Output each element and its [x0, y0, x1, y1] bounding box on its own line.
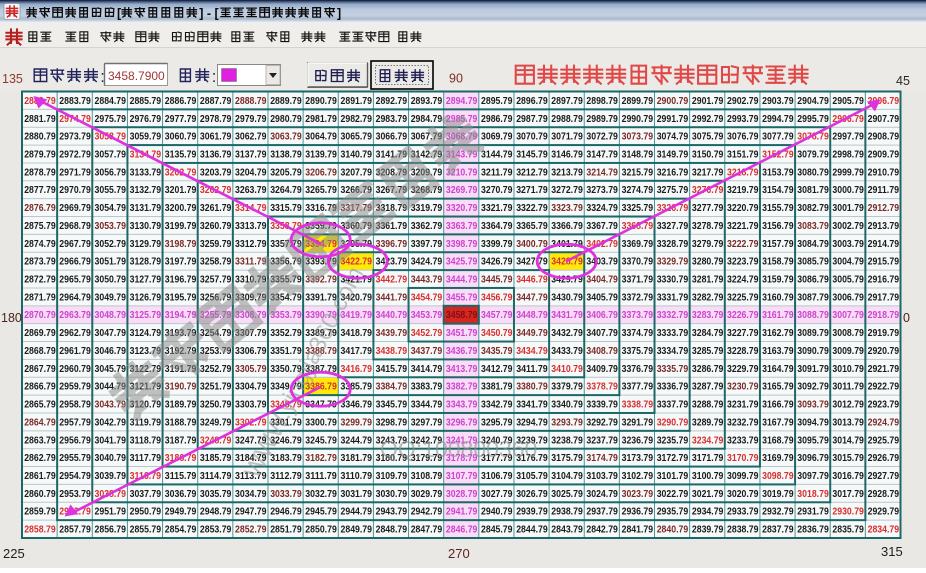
svg-text:3170.79: 3170.79	[727, 453, 759, 464]
svg-text:2881.79: 2881.79	[24, 114, 56, 125]
svg-text:3287.79: 3287.79	[692, 382, 724, 393]
svg-text:3026.79: 3026.79	[516, 489, 548, 500]
svg-text:2898.79: 2898.79	[586, 96, 618, 107]
svg-text:3270.79: 3270.79	[481, 185, 513, 196]
svg-text:3214.79: 3214.79	[586, 167, 618, 178]
svg-text:3337.79: 3337.79	[657, 400, 689, 411]
svg-text:90: 90	[449, 72, 463, 86]
svg-text:2953.79: 2953.79	[59, 489, 91, 500]
svg-text:3161.79: 3161.79	[762, 310, 794, 321]
svg-text:2995.79: 2995.79	[797, 114, 829, 125]
svg-text:2948.79: 2948.79	[200, 507, 232, 518]
svg-text:3458.79: 3458.79	[446, 310, 478, 321]
svg-text:3396.79: 3396.79	[376, 239, 408, 250]
svg-text:3185.79: 3185.79	[200, 453, 232, 464]
svg-text:3125.79: 3125.79	[130, 310, 162, 321]
svg-text:3363.79: 3363.79	[446, 221, 478, 232]
svg-text:3025.79: 3025.79	[551, 489, 583, 500]
svg-text:3263.79: 3263.79	[235, 185, 267, 196]
svg-text:3070.79: 3070.79	[516, 132, 548, 143]
svg-text:3455.79: 3455.79	[446, 292, 478, 303]
svg-text:3407.79: 3407.79	[586, 328, 618, 339]
svg-text:3063.79: 3063.79	[270, 132, 302, 143]
svg-text:3398.79: 3398.79	[446, 239, 478, 250]
svg-text:3169.79: 3169.79	[762, 453, 794, 464]
svg-text:3198.79: 3198.79	[165, 239, 197, 250]
svg-text:225: 225	[3, 546, 25, 561]
svg-text:3151.79: 3151.79	[727, 150, 759, 161]
svg-text:3017.79: 3017.79	[832, 489, 864, 500]
svg-text:3129.79: 3129.79	[130, 239, 162, 250]
svg-text:3117.79: 3117.79	[130, 453, 162, 464]
svg-text:2921.79: 2921.79	[868, 364, 900, 375]
svg-text:3076.79: 3076.79	[727, 132, 759, 143]
svg-text:2839.79: 2839.79	[692, 525, 724, 536]
svg-text:3234.79: 3234.79	[692, 435, 724, 446]
svg-text:3450.79: 3450.79	[481, 328, 513, 339]
svg-text:2888.79: 2888.79	[235, 96, 267, 107]
svg-text:3431.79: 3431.79	[551, 310, 583, 321]
svg-text:2997.79: 2997.79	[832, 132, 864, 143]
svg-text:3423.79: 3423.79	[376, 257, 408, 268]
svg-text:3452.79: 3452.79	[411, 328, 443, 339]
svg-text:2845.79: 2845.79	[481, 525, 513, 536]
svg-text:3008.79: 3008.79	[832, 328, 864, 339]
svg-text:3174.79: 3174.79	[586, 453, 618, 464]
svg-text:3107.79: 3107.79	[446, 471, 478, 482]
svg-text:3212.79: 3212.79	[516, 167, 548, 178]
svg-text:3197.79: 3197.79	[165, 257, 197, 268]
svg-text:3105.79: 3105.79	[516, 471, 548, 482]
svg-text:2893.79: 2893.79	[411, 96, 443, 107]
svg-text:2868.79: 2868.79	[24, 346, 56, 357]
svg-text:3042.79: 3042.79	[95, 417, 127, 428]
svg-text:3013.79: 3013.79	[832, 417, 864, 428]
svg-text:3114.79: 3114.79	[200, 471, 232, 482]
svg-text:2992.79: 2992.79	[692, 114, 724, 125]
svg-text:3408.79: 3408.79	[586, 346, 618, 357]
svg-text:2927.79: 2927.79	[868, 471, 900, 482]
svg-text:3322.79: 3322.79	[516, 203, 548, 214]
svg-text:3446.79: 3446.79	[516, 275, 548, 286]
svg-text:3224.79: 3224.79	[727, 275, 759, 286]
svg-text:3418.79: 3418.79	[341, 328, 373, 339]
svg-text:3020.79: 3020.79	[727, 489, 759, 500]
svg-text:2981.79: 2981.79	[305, 114, 337, 125]
svg-text:2905.79: 2905.79	[832, 96, 864, 107]
svg-text:3071.79: 3071.79	[551, 132, 583, 143]
svg-text:3036.79: 3036.79	[165, 489, 197, 500]
svg-text:3352.79: 3352.79	[270, 328, 302, 339]
svg-text:3456.79: 3456.79	[481, 292, 513, 303]
svg-text:3344.79: 3344.79	[411, 400, 443, 411]
svg-text:3059.79: 3059.79	[130, 132, 162, 143]
svg-text:3281.79: 3281.79	[692, 275, 724, 286]
svg-text:3016.79: 3016.79	[832, 471, 864, 482]
svg-text:3037.79: 3037.79	[130, 489, 162, 500]
svg-text:3369.79: 3369.79	[622, 239, 654, 250]
svg-text:3370.79: 3370.79	[622, 257, 654, 268]
svg-text:2886.79: 2886.79	[165, 96, 197, 107]
svg-text:3108.79: 3108.79	[411, 471, 443, 482]
svg-text:3024.79: 3024.79	[586, 489, 618, 500]
svg-text:3306.79: 3306.79	[235, 346, 267, 357]
svg-text:3283.79: 3283.79	[692, 310, 724, 321]
svg-text:2980.79: 2980.79	[270, 114, 302, 125]
svg-text:3291.79: 3291.79	[622, 417, 654, 428]
svg-text:]: ]	[337, 7, 341, 21]
svg-text:3046.79: 3046.79	[95, 346, 127, 357]
svg-text:3333.79: 3333.79	[657, 328, 689, 339]
svg-text:3187.79: 3187.79	[165, 435, 197, 446]
svg-text:3226.79: 3226.79	[727, 310, 759, 321]
svg-text:3260.79: 3260.79	[200, 221, 232, 232]
svg-text:3271.79: 3271.79	[516, 185, 548, 196]
svg-text:3340.79: 3340.79	[551, 400, 583, 411]
svg-text:3158.79: 3158.79	[762, 257, 794, 268]
svg-text:3195.79: 3195.79	[165, 292, 197, 303]
svg-text:2908.79: 2908.79	[868, 132, 900, 143]
svg-text:2978.79: 2978.79	[200, 114, 232, 125]
svg-text:3324.79: 3324.79	[586, 203, 618, 214]
svg-text:3269.79: 3269.79	[446, 185, 478, 196]
svg-text:QQ:100800360: QQ:100800360	[380, 436, 537, 462]
svg-text:3251.79: 3251.79	[200, 382, 232, 393]
svg-text:3181.79: 3181.79	[341, 453, 373, 464]
svg-text:3092.79: 3092.79	[797, 382, 829, 393]
svg-text:3413.79: 3413.79	[446, 364, 478, 375]
svg-text:2841.79: 2841.79	[622, 525, 654, 536]
svg-text:2894.79: 2894.79	[446, 96, 478, 107]
svg-text:3003.79: 3003.79	[832, 239, 864, 250]
svg-text:2842.79: 2842.79	[586, 525, 618, 536]
svg-text:3300.79: 3300.79	[305, 417, 337, 428]
svg-text:135: 135	[2, 72, 23, 86]
svg-text:2986.79: 2986.79	[481, 114, 513, 125]
svg-text:3194.79: 3194.79	[165, 310, 197, 321]
svg-text:2897.79: 2897.79	[551, 96, 583, 107]
svg-text:3035.79: 3035.79	[200, 489, 232, 500]
svg-text:3244.79: 3244.79	[341, 435, 373, 446]
svg-text:3367.79: 3367.79	[586, 221, 618, 232]
svg-text:3196.79: 3196.79	[165, 275, 197, 286]
svg-text:0: 0	[903, 311, 910, 325]
svg-text:2984.79: 2984.79	[411, 114, 443, 125]
svg-text:3118.79: 3118.79	[130, 435, 162, 446]
svg-text:3311.79: 3311.79	[235, 257, 267, 268]
svg-text:3145.79: 3145.79	[516, 150, 548, 161]
svg-text:3080.79: 3080.79	[797, 167, 829, 178]
svg-text:3400.79: 3400.79	[516, 239, 548, 250]
svg-text:3082.79: 3082.79	[797, 203, 829, 214]
svg-text:3000.79: 3000.79	[832, 185, 864, 196]
svg-text:2900.79: 2900.79	[657, 96, 689, 107]
svg-text:3275.79: 3275.79	[657, 185, 689, 196]
svg-text:3018.79: 3018.79	[797, 489, 829, 500]
svg-text:2969.79: 2969.79	[59, 203, 91, 214]
svg-text:3205.79: 3205.79	[270, 167, 302, 178]
svg-text:3227.79: 3227.79	[727, 328, 759, 339]
svg-text:2864.79: 2864.79	[24, 417, 56, 428]
svg-text:2998.79: 2998.79	[832, 150, 864, 161]
svg-text:2887.79: 2887.79	[200, 96, 232, 107]
svg-text:3182.79: 3182.79	[305, 453, 337, 464]
svg-text:2884.79: 2884.79	[95, 96, 127, 107]
svg-text:2983.79: 2983.79	[376, 114, 408, 125]
svg-text:3144.79: 3144.79	[481, 150, 513, 161]
svg-text:3365.79: 3365.79	[516, 221, 548, 232]
svg-text:3022.79: 3022.79	[657, 489, 689, 500]
svg-text:3339.79: 3339.79	[586, 400, 618, 411]
svg-text:3011.79: 3011.79	[832, 382, 864, 393]
svg-text:3168.79: 3168.79	[762, 435, 794, 446]
svg-text:2940.79: 2940.79	[481, 507, 513, 518]
svg-text:2957.79: 2957.79	[59, 417, 91, 428]
svg-text:3154.79: 3154.79	[762, 185, 794, 196]
svg-text:2944.79: 2944.79	[341, 507, 373, 518]
svg-text:3383.79: 3383.79	[411, 382, 443, 393]
svg-text:45: 45	[896, 74, 910, 88]
svg-text:3027.79: 3027.79	[481, 489, 513, 500]
svg-text:3206.79: 3206.79	[305, 167, 337, 178]
svg-text:3338.79: 3338.79	[622, 400, 654, 411]
svg-text:3320.79: 3320.79	[446, 203, 478, 214]
svg-text:3435.79: 3435.79	[481, 346, 513, 357]
svg-text:3257.79: 3257.79	[200, 275, 232, 286]
svg-text:3034.79: 3034.79	[235, 489, 267, 500]
svg-text:2878.79: 2878.79	[24, 167, 56, 178]
svg-text:3259.79: 3259.79	[200, 239, 232, 250]
svg-text:3085.79: 3085.79	[797, 257, 829, 268]
svg-text:2872.79: 2872.79	[24, 275, 56, 286]
svg-text:2876.79: 2876.79	[24, 203, 56, 214]
svg-text:3336.79: 3336.79	[657, 382, 689, 393]
svg-text:2858.79: 2858.79	[24, 525, 56, 536]
svg-text:2889.79: 2889.79	[270, 96, 302, 107]
svg-text:3155.79: 3155.79	[762, 203, 794, 214]
svg-text:2930.79: 2930.79	[832, 507, 864, 518]
svg-text:270: 270	[448, 546, 470, 561]
svg-text:3343.79: 3343.79	[446, 400, 478, 411]
svg-text:3146.79: 3146.79	[551, 150, 583, 161]
svg-text:3285.79: 3285.79	[692, 346, 724, 357]
svg-text:2924.79: 2924.79	[868, 417, 900, 428]
svg-text:3077.79: 3077.79	[762, 132, 794, 143]
svg-text:3328.79: 3328.79	[657, 239, 689, 250]
svg-text:3290.79: 3290.79	[657, 417, 689, 428]
svg-text:3012.79: 3012.79	[832, 400, 864, 411]
svg-text:3094.79: 3094.79	[797, 417, 829, 428]
svg-text:3305.79: 3305.79	[235, 364, 267, 375]
svg-text:3166.79: 3166.79	[762, 400, 794, 411]
svg-text:2853.79: 2853.79	[200, 525, 232, 536]
svg-text:2836.79: 2836.79	[797, 525, 829, 536]
svg-text:3004.79: 3004.79	[832, 257, 864, 268]
svg-text:3140.79: 3140.79	[341, 150, 373, 161]
svg-text:3440.79: 3440.79	[376, 310, 408, 321]
svg-text:3079.79: 3079.79	[797, 150, 829, 161]
svg-text:2904.79: 2904.79	[797, 96, 829, 107]
svg-text:3220.79: 3220.79	[727, 203, 759, 214]
svg-text:3088.79: 3088.79	[797, 310, 829, 321]
svg-text:3265.79: 3265.79	[305, 185, 337, 196]
svg-text:2982.79: 2982.79	[341, 114, 373, 125]
svg-text:2835.79: 2835.79	[832, 525, 864, 536]
svg-text:3284.79: 3284.79	[692, 328, 724, 339]
svg-text:2834.79: 2834.79	[868, 525, 900, 536]
svg-text:3264.79: 3264.79	[270, 185, 302, 196]
svg-text:2855.79: 2855.79	[130, 525, 162, 536]
svg-text:3245.79: 3245.79	[305, 435, 337, 446]
svg-text:3228.79: 3228.79	[727, 346, 759, 357]
svg-text:3438.79: 3438.79	[376, 346, 408, 357]
svg-text:3457.79: 3457.79	[481, 310, 513, 321]
svg-text:2946.79: 2946.79	[270, 507, 302, 518]
svg-text:3066.79: 3066.79	[376, 132, 408, 143]
svg-text:3204.79: 3204.79	[235, 167, 267, 178]
svg-text:3303.79: 3303.79	[235, 400, 267, 411]
svg-text:3199.79: 3199.79	[165, 221, 197, 232]
svg-text:3153.79: 3153.79	[762, 167, 794, 178]
svg-text:3102.79: 3102.79	[622, 471, 654, 482]
svg-text:3062.79: 3062.79	[235, 132, 267, 143]
svg-text:3282.79: 3282.79	[692, 292, 724, 303]
svg-text:3163.79: 3163.79	[762, 346, 794, 357]
svg-text:3249.79: 3249.79	[200, 417, 232, 428]
svg-text:2851.79: 2851.79	[270, 525, 302, 536]
svg-text:3010.79: 3010.79	[832, 364, 864, 375]
svg-text:3006.79: 3006.79	[832, 292, 864, 303]
svg-text:3382.79: 3382.79	[446, 382, 478, 393]
svg-text:3327.79: 3327.79	[657, 221, 689, 232]
svg-text:2846.79: 2846.79	[446, 525, 478, 536]
svg-text:3007.79: 3007.79	[832, 310, 864, 321]
svg-text:3064.79: 3064.79	[305, 132, 337, 143]
svg-text:3376.79: 3376.79	[622, 364, 654, 375]
svg-text:2838.79: 2838.79	[727, 525, 759, 536]
svg-text:3173.79: 3173.79	[622, 453, 654, 464]
svg-text:2879.79: 2879.79	[24, 150, 56, 161]
svg-text:3188.79: 3188.79	[165, 417, 197, 428]
svg-text:3325.79: 3325.79	[622, 203, 654, 214]
svg-text:3189.79: 3189.79	[165, 400, 197, 411]
svg-text:2848.79: 2848.79	[376, 525, 408, 536]
svg-text:2918.79: 2918.79	[868, 310, 900, 321]
svg-text:3111.79: 3111.79	[305, 471, 337, 482]
svg-text:3135.79: 3135.79	[165, 150, 197, 161]
svg-text:3216.79: 3216.79	[657, 167, 689, 178]
svg-text:2866.79: 2866.79	[24, 382, 56, 393]
svg-text:2850.79: 2850.79	[305, 525, 337, 536]
svg-text:3137.79: 3137.79	[235, 150, 267, 161]
svg-text:2929.79: 2929.79	[868, 507, 900, 518]
svg-text:3433.79: 3433.79	[551, 346, 583, 357]
svg-text:3273.79: 3273.79	[586, 185, 618, 196]
svg-text:3097.79: 3097.79	[797, 471, 829, 482]
svg-text:3091.79: 3091.79	[797, 364, 829, 375]
svg-text:2917.79: 2917.79	[868, 292, 900, 303]
svg-text:2854.79: 2854.79	[165, 525, 197, 536]
svg-text:3014.79: 3014.79	[832, 435, 864, 446]
svg-text:3045.79: 3045.79	[95, 364, 127, 375]
svg-text:3110.79: 3110.79	[341, 471, 373, 482]
svg-text:3439.79: 3439.79	[376, 328, 408, 339]
svg-text:2999.79: 2999.79	[832, 167, 864, 178]
svg-text:180: 180	[1, 311, 22, 325]
svg-text:3165.79: 3165.79	[762, 382, 794, 393]
svg-text:2870.79: 2870.79	[24, 310, 56, 321]
svg-text:3403.79: 3403.79	[586, 257, 618, 268]
svg-text:3148.79: 3148.79	[622, 150, 654, 161]
svg-text:3258.79: 3258.79	[200, 257, 232, 268]
svg-text:3065.79: 3065.79	[341, 132, 373, 143]
svg-text:2976.79: 2976.79	[130, 114, 162, 125]
svg-text:3432.79: 3432.79	[551, 328, 583, 339]
svg-text:3412.79: 3412.79	[481, 364, 513, 375]
svg-text:2847.79: 2847.79	[411, 525, 443, 536]
svg-text:3236.79: 3236.79	[622, 435, 654, 446]
svg-text:2934.79: 2934.79	[692, 507, 724, 518]
svg-text:2971.79: 2971.79	[59, 167, 91, 178]
svg-text:3130.79: 3130.79	[130, 221, 162, 232]
svg-text:3410.79: 3410.79	[551, 364, 583, 375]
svg-text:3030.79: 3030.79	[376, 489, 408, 500]
svg-text:2857.79: 2857.79	[59, 525, 91, 536]
svg-text:3425.79: 3425.79	[446, 257, 478, 268]
svg-text:3090.79: 3090.79	[797, 346, 829, 357]
svg-text:3029.79: 3029.79	[411, 489, 443, 500]
svg-text:3061.79: 3061.79	[200, 132, 232, 143]
svg-text:2959.79: 2959.79	[59, 382, 91, 393]
svg-text:3072.79: 3072.79	[586, 132, 618, 143]
svg-text:3272.79: 3272.79	[551, 185, 583, 196]
svg-text:3051.79: 3051.79	[95, 257, 127, 268]
svg-text:3235.79: 3235.79	[657, 435, 689, 446]
svg-text:2919.79: 2919.79	[868, 328, 900, 339]
svg-text:2877.79: 2877.79	[24, 185, 56, 196]
svg-text:3436.79: 3436.79	[446, 346, 478, 357]
svg-text:3444.79: 3444.79	[446, 275, 478, 286]
svg-text:3149.79: 3149.79	[657, 150, 689, 161]
svg-text:3031.79: 3031.79	[341, 489, 373, 500]
svg-text:3293.79: 3293.79	[551, 417, 583, 428]
svg-text:3381.79: 3381.79	[481, 382, 513, 393]
svg-text:3019.79: 3019.79	[762, 489, 794, 500]
svg-text:3374.79: 3374.79	[622, 328, 654, 339]
svg-text:3089.79: 3089.79	[797, 328, 829, 339]
svg-text:3127.79: 3127.79	[130, 275, 162, 286]
svg-text:3215.79: 3215.79	[622, 167, 654, 178]
svg-text:2932.79: 2932.79	[762, 507, 794, 518]
svg-text:2988.79: 2988.79	[551, 114, 583, 125]
svg-text:3096.79: 3096.79	[797, 453, 829, 464]
svg-text:3002.79: 3002.79	[832, 221, 864, 232]
svg-text:3288.79: 3288.79	[692, 400, 724, 411]
svg-text:3231.79: 3231.79	[727, 400, 759, 411]
svg-text:3372.79: 3372.79	[622, 292, 654, 303]
svg-text:3223.79: 3223.79	[727, 257, 759, 268]
svg-text:2856.79: 2856.79	[95, 525, 127, 536]
svg-text:2937.79: 2937.79	[586, 507, 618, 518]
svg-text:3157.79: 3157.79	[762, 239, 794, 250]
svg-text:3417.79: 3417.79	[341, 346, 373, 357]
svg-text:3159.79: 3159.79	[762, 275, 794, 286]
svg-text:3373.79: 3373.79	[622, 310, 654, 321]
svg-text:2939.79: 2939.79	[516, 507, 548, 518]
svg-text:2962.79: 2962.79	[59, 328, 91, 339]
svg-text:3049.79: 3049.79	[95, 292, 127, 303]
svg-text:3415.79: 3415.79	[376, 364, 408, 375]
